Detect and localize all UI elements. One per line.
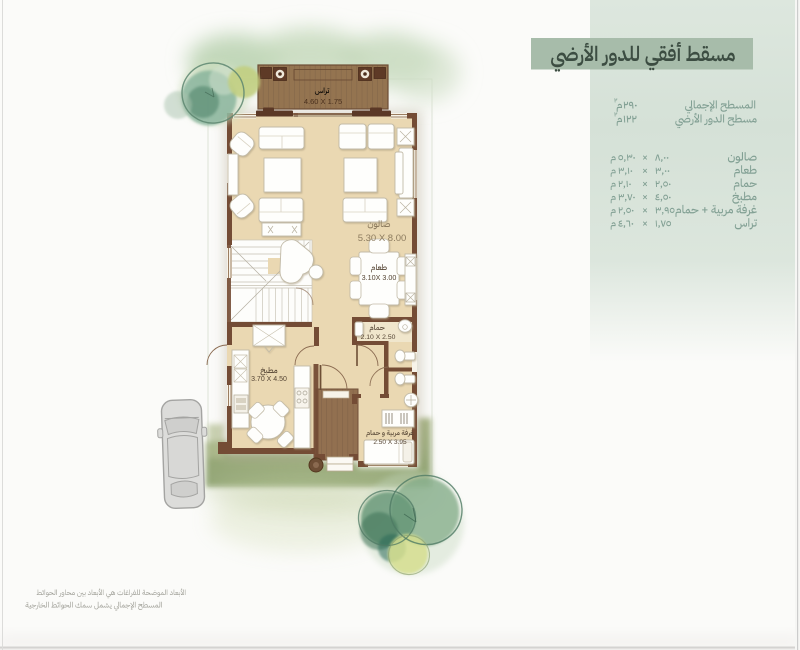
svg-text:5.30 X 8.00: 5.30 X 8.00: [358, 233, 407, 244]
svg-text:3.10X 3.00: 3.10X 3.00: [362, 273, 397, 282]
svg-text:2.50 X 3.95: 2.50 X 3.95: [373, 439, 407, 446]
svg-text:4.60 X 1.75: 4.60 X 1.75: [304, 97, 342, 106]
svg-text:2.10 X 2.50: 2.10 X 2.50: [361, 334, 396, 341]
svg-text:3.70 X 4.50: 3.70 X 4.50: [251, 376, 287, 383]
